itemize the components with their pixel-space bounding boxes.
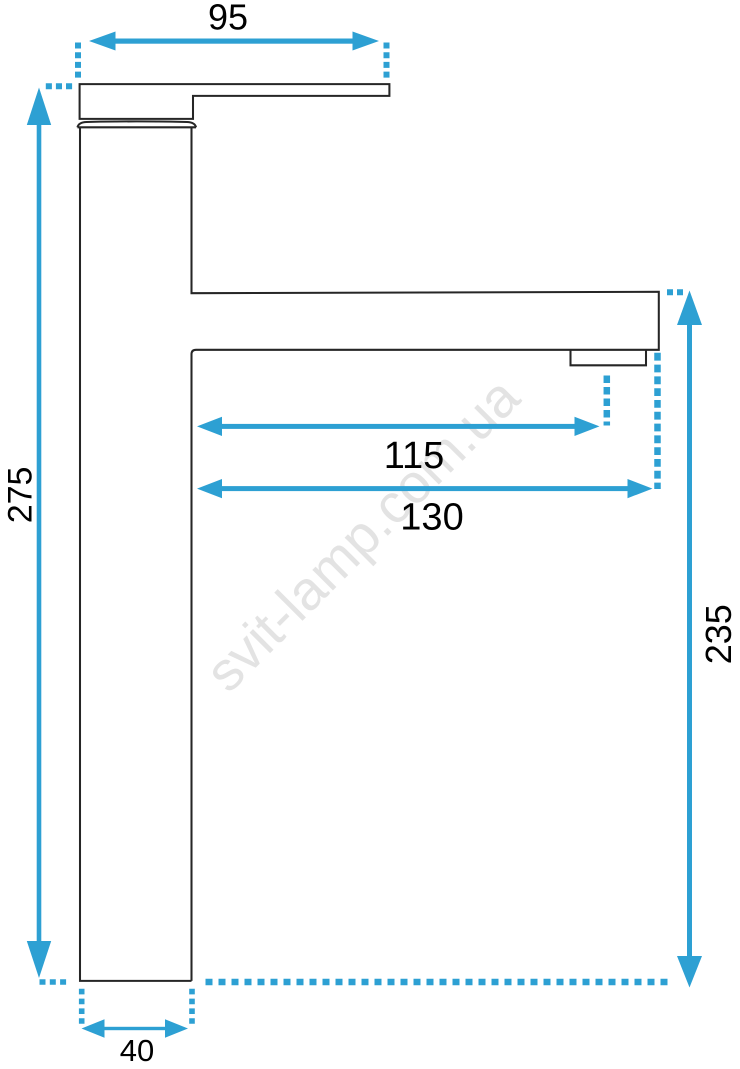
svg-text:40: 40 <box>120 1033 154 1068</box>
svg-text:svit-lamp.com.ua: svit-lamp.com.ua <box>193 365 531 703</box>
svg-text:95: 95 <box>208 0 248 38</box>
svg-text:235: 235 <box>698 604 739 664</box>
svg-text:275: 275 <box>2 467 40 524</box>
svg-text:130: 130 <box>400 497 463 539</box>
svg-text:115: 115 <box>384 435 445 477</box>
